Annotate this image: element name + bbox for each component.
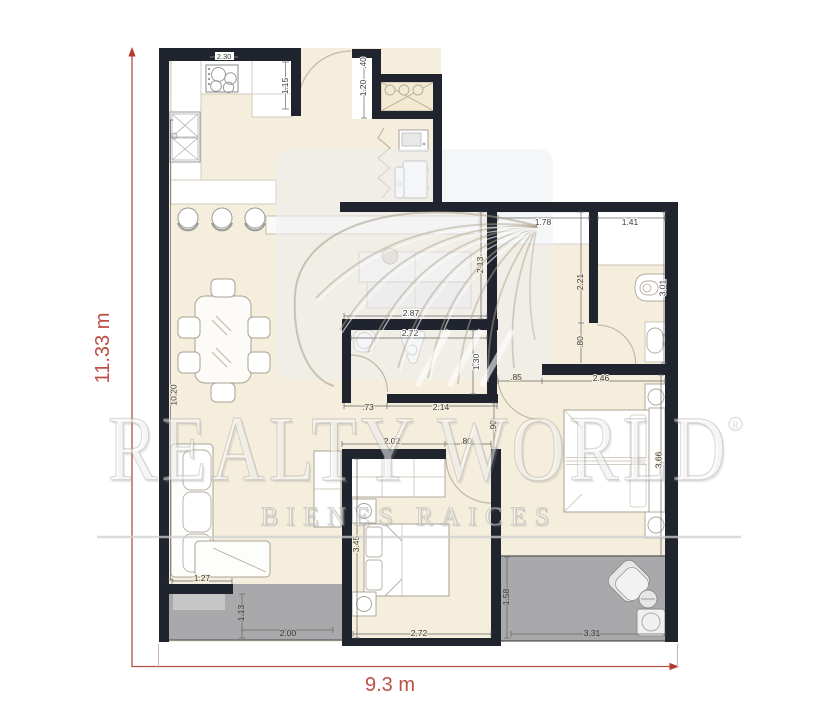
svg-text:11.33 m: 11.33 m [92, 313, 114, 384]
svg-text:2.87: 2.87 [403, 308, 420, 318]
svg-text:REALTY WORLD: REALTY WORLD [108, 398, 730, 501]
svg-text:.80: .80 [575, 336, 585, 348]
svg-text:1.20: 1.20 [358, 79, 368, 96]
svg-text:3.01: 3.01 [658, 279, 668, 296]
svg-text:.85: .85 [510, 372, 522, 382]
svg-text:2.00: 2.00 [280, 628, 297, 638]
svg-text:1.30: 1.30 [471, 353, 481, 370]
svg-text:1.41: 1.41 [622, 217, 639, 227]
svg-text:1.58: 1.58 [501, 588, 511, 605]
svg-text:3.31: 3.31 [584, 628, 601, 638]
svg-text:2.21: 2.21 [575, 273, 585, 290]
svg-text:1.27: 1.27 [194, 573, 211, 583]
svg-text:2.30: 2.30 [217, 52, 232, 61]
svg-text:1.78: 1.78 [535, 217, 552, 227]
svg-text:1.13: 1.13 [236, 604, 246, 621]
svg-text:.40: .40 [358, 57, 368, 69]
svg-text:R: R [732, 421, 739, 432]
svg-text:1.15: 1.15 [280, 77, 290, 94]
svg-text:2.72: 2.72 [411, 628, 428, 638]
svg-text:2.46: 2.46 [593, 373, 610, 383]
svg-text:9.3 m: 9.3 m [365, 674, 415, 696]
svg-text:BIENES RAICES: BIENES RAICES [261, 502, 558, 531]
